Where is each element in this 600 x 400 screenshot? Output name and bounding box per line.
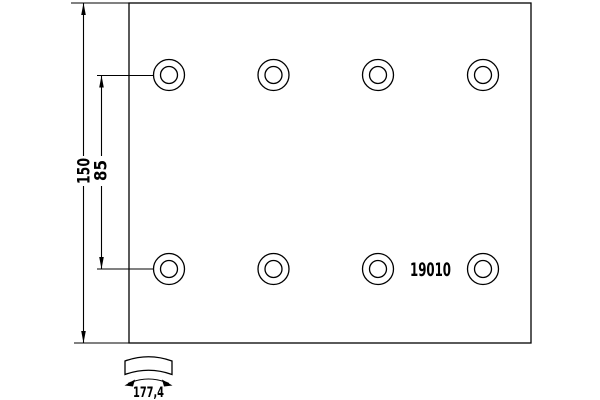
rivet-hole [154, 254, 185, 285]
arrowhead-up-icon [81, 3, 86, 15]
lining-plate-outline [129, 3, 531, 343]
rivet-hole [258, 60, 289, 91]
curved-lining-section [125, 357, 172, 375]
rivet-holes [154, 60, 499, 285]
rivet-hole [258, 254, 289, 285]
dim-85-label: 85 [92, 160, 111, 181]
part-number: 19010 [410, 259, 451, 281]
rivet-hole [363, 254, 394, 285]
rivet-hole [363, 60, 394, 91]
rivet-hole [154, 60, 185, 91]
dim-arc-width-label: 177,4 [133, 385, 164, 400]
arrowhead-up-icon [99, 76, 104, 88]
rivet-hole [468, 60, 499, 91]
rivet-hole [468, 254, 499, 285]
arrowhead-down-icon [81, 331, 86, 343]
dimension-hole-spacing-85: 85 [92, 76, 154, 270]
drawing-svg: 150 85 19010 177,4 [0, 0, 600, 400]
arrowhead-down-icon [99, 257, 104, 269]
technical-drawing: 150 85 19010 177,4 [0, 0, 600, 400]
arc-section-symbol: 177,4 [125, 357, 173, 400]
